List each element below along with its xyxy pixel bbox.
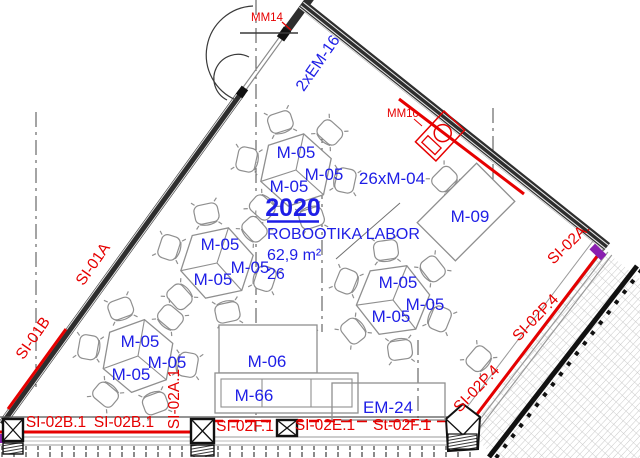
door-swing-arc	[206, 6, 253, 100]
label-m05: M-05	[270, 177, 309, 196]
label-m05: M-05	[121, 332, 160, 351]
floor-plan-svg: MM14 2xEM-16 MM1c 26xM-04 2020 ROBOOTIKA…	[0, 0, 640, 458]
label-m05: M-05	[194, 270, 233, 289]
floor-plan-viewport: MM14 2xEM-16 MM1c 26xM-04 2020 ROBOOTIKA…	[0, 0, 640, 458]
wall-tag-si02a: SI-02A.	[544, 220, 593, 268]
room-number: 2020	[265, 194, 321, 222]
label-m66: M-66	[235, 386, 274, 405]
label-m05: M-05	[277, 143, 316, 162]
label-2xem16: 2xEM-16	[293, 32, 344, 94]
wall-tag-si02a1: SI-02A.1	[166, 369, 183, 429]
room-occupancy: 26	[267, 266, 285, 283]
room-area: 62,9 m²	[267, 247, 322, 264]
label-em24: EM-24	[363, 398, 413, 417]
label-mm1c: MM1c	[387, 108, 419, 120]
wall-tag-si02f1: SI-02F.1	[216, 418, 274, 435]
label-26xm04: 26xM-04	[359, 169, 425, 188]
wall-tag-si02e1: SI-02E.1	[295, 417, 355, 434]
label-m09: M-09	[451, 207, 490, 226]
wall-tag-si02b1: SI-02B.1	[94, 414, 154, 431]
label-m05: M-05	[201, 235, 240, 254]
label-m05: M-05	[305, 165, 344, 184]
column	[191, 419, 214, 456]
label-m05: M-05	[379, 273, 418, 292]
label-mm14: MM14	[251, 12, 284, 24]
room-name: ROBOOTIKA LABOR	[267, 226, 420, 243]
label-m05: M-05	[406, 295, 445, 314]
label-m05: M-05	[112, 365, 151, 384]
exterior-hatch-zone	[470, 249, 640, 458]
label-m06: M-06	[248, 352, 287, 371]
table-cluster-3	[58, 275, 218, 438]
facade-ticks	[0, 446, 472, 457]
wall-tag-si02b1: SI-02B.1	[26, 414, 86, 431]
wall-tag-st02f1: St-02F.1	[373, 417, 431, 434]
label-m05: M-05	[231, 258, 270, 277]
column	[3, 419, 23, 454]
label-m05: M-05	[372, 307, 411, 326]
